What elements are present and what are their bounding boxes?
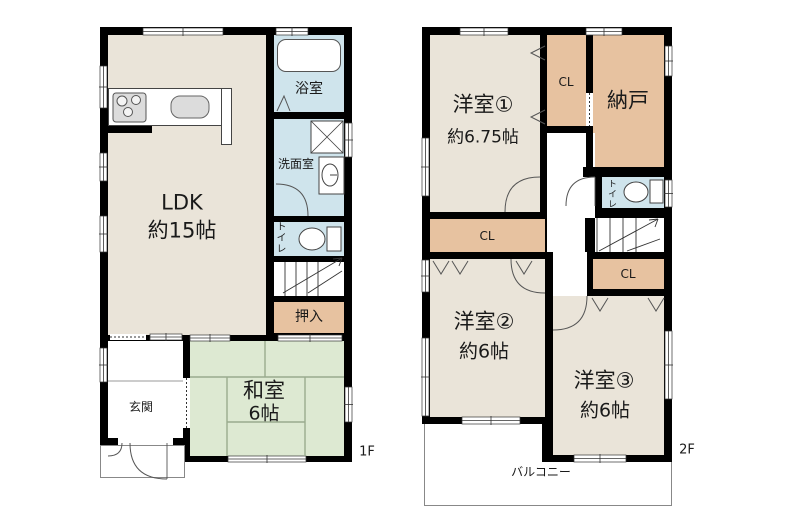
room-western2	[430, 259, 545, 417]
label-western1-size: 約6.75帖	[447, 130, 519, 147]
label-genkan: 玄関	[129, 401, 153, 413]
genkan-porch	[100, 445, 185, 478]
label-washer: 洗	[320, 131, 333, 144]
label-western3-size: 約6帖	[580, 402, 630, 421]
label-washitsu-size: 6帖	[248, 405, 279, 424]
hall-2f-b	[547, 218, 585, 252]
kitchen-counter	[108, 88, 232, 126]
label-toilet-2f: トイレ	[606, 179, 615, 209]
label-closet-top: CL	[558, 76, 573, 88]
label-oshiire: 押入	[295, 310, 323, 324]
label-balcony: バルコニー	[511, 466, 571, 478]
label-washroom: 洗面室	[278, 158, 314, 170]
nando-wall-patch2	[586, 133, 593, 167]
label-ldk-size: 約15帖	[148, 221, 217, 242]
room-ldk	[108, 35, 266, 335]
label-western3: 洋室③	[574, 371, 635, 392]
label-floor2: 2F	[679, 444, 695, 457]
label-western2: 洋室②	[454, 312, 515, 333]
room-western1	[430, 35, 540, 212]
nando-wall-patch1	[583, 167, 595, 177]
stairs-2f	[595, 218, 664, 252]
label-closet-right: CL	[620, 268, 635, 280]
genkan-door-gap	[118, 438, 173, 445]
floorplan-page: LDK 約15帖 浴室 洗 洗面室 トイレ 押入 和室 6帖 玄関 1F 洋室①…	[0, 0, 800, 531]
label-ldk: LDK	[161, 193, 203, 214]
label-bath: 浴室	[295, 82, 323, 96]
label-nando: 納戸	[607, 91, 649, 112]
kitchen-counter-return	[221, 88, 232, 145]
hall-2f-c	[553, 252, 587, 296]
label-toilet-1f: トイレ	[274, 221, 284, 254]
label-western1: 洋室①	[453, 95, 514, 116]
label-floor1: 1F	[359, 446, 375, 459]
room-genkan	[108, 341, 183, 438]
label-western2-size: 約6帖	[459, 343, 509, 362]
label-closet-left: CL	[479, 230, 494, 242]
label-washitsu: 和室	[243, 381, 285, 402]
stairs-1f	[274, 262, 344, 296]
kitchen-half-wall	[108, 126, 152, 133]
bathtub-icon	[277, 39, 341, 72]
